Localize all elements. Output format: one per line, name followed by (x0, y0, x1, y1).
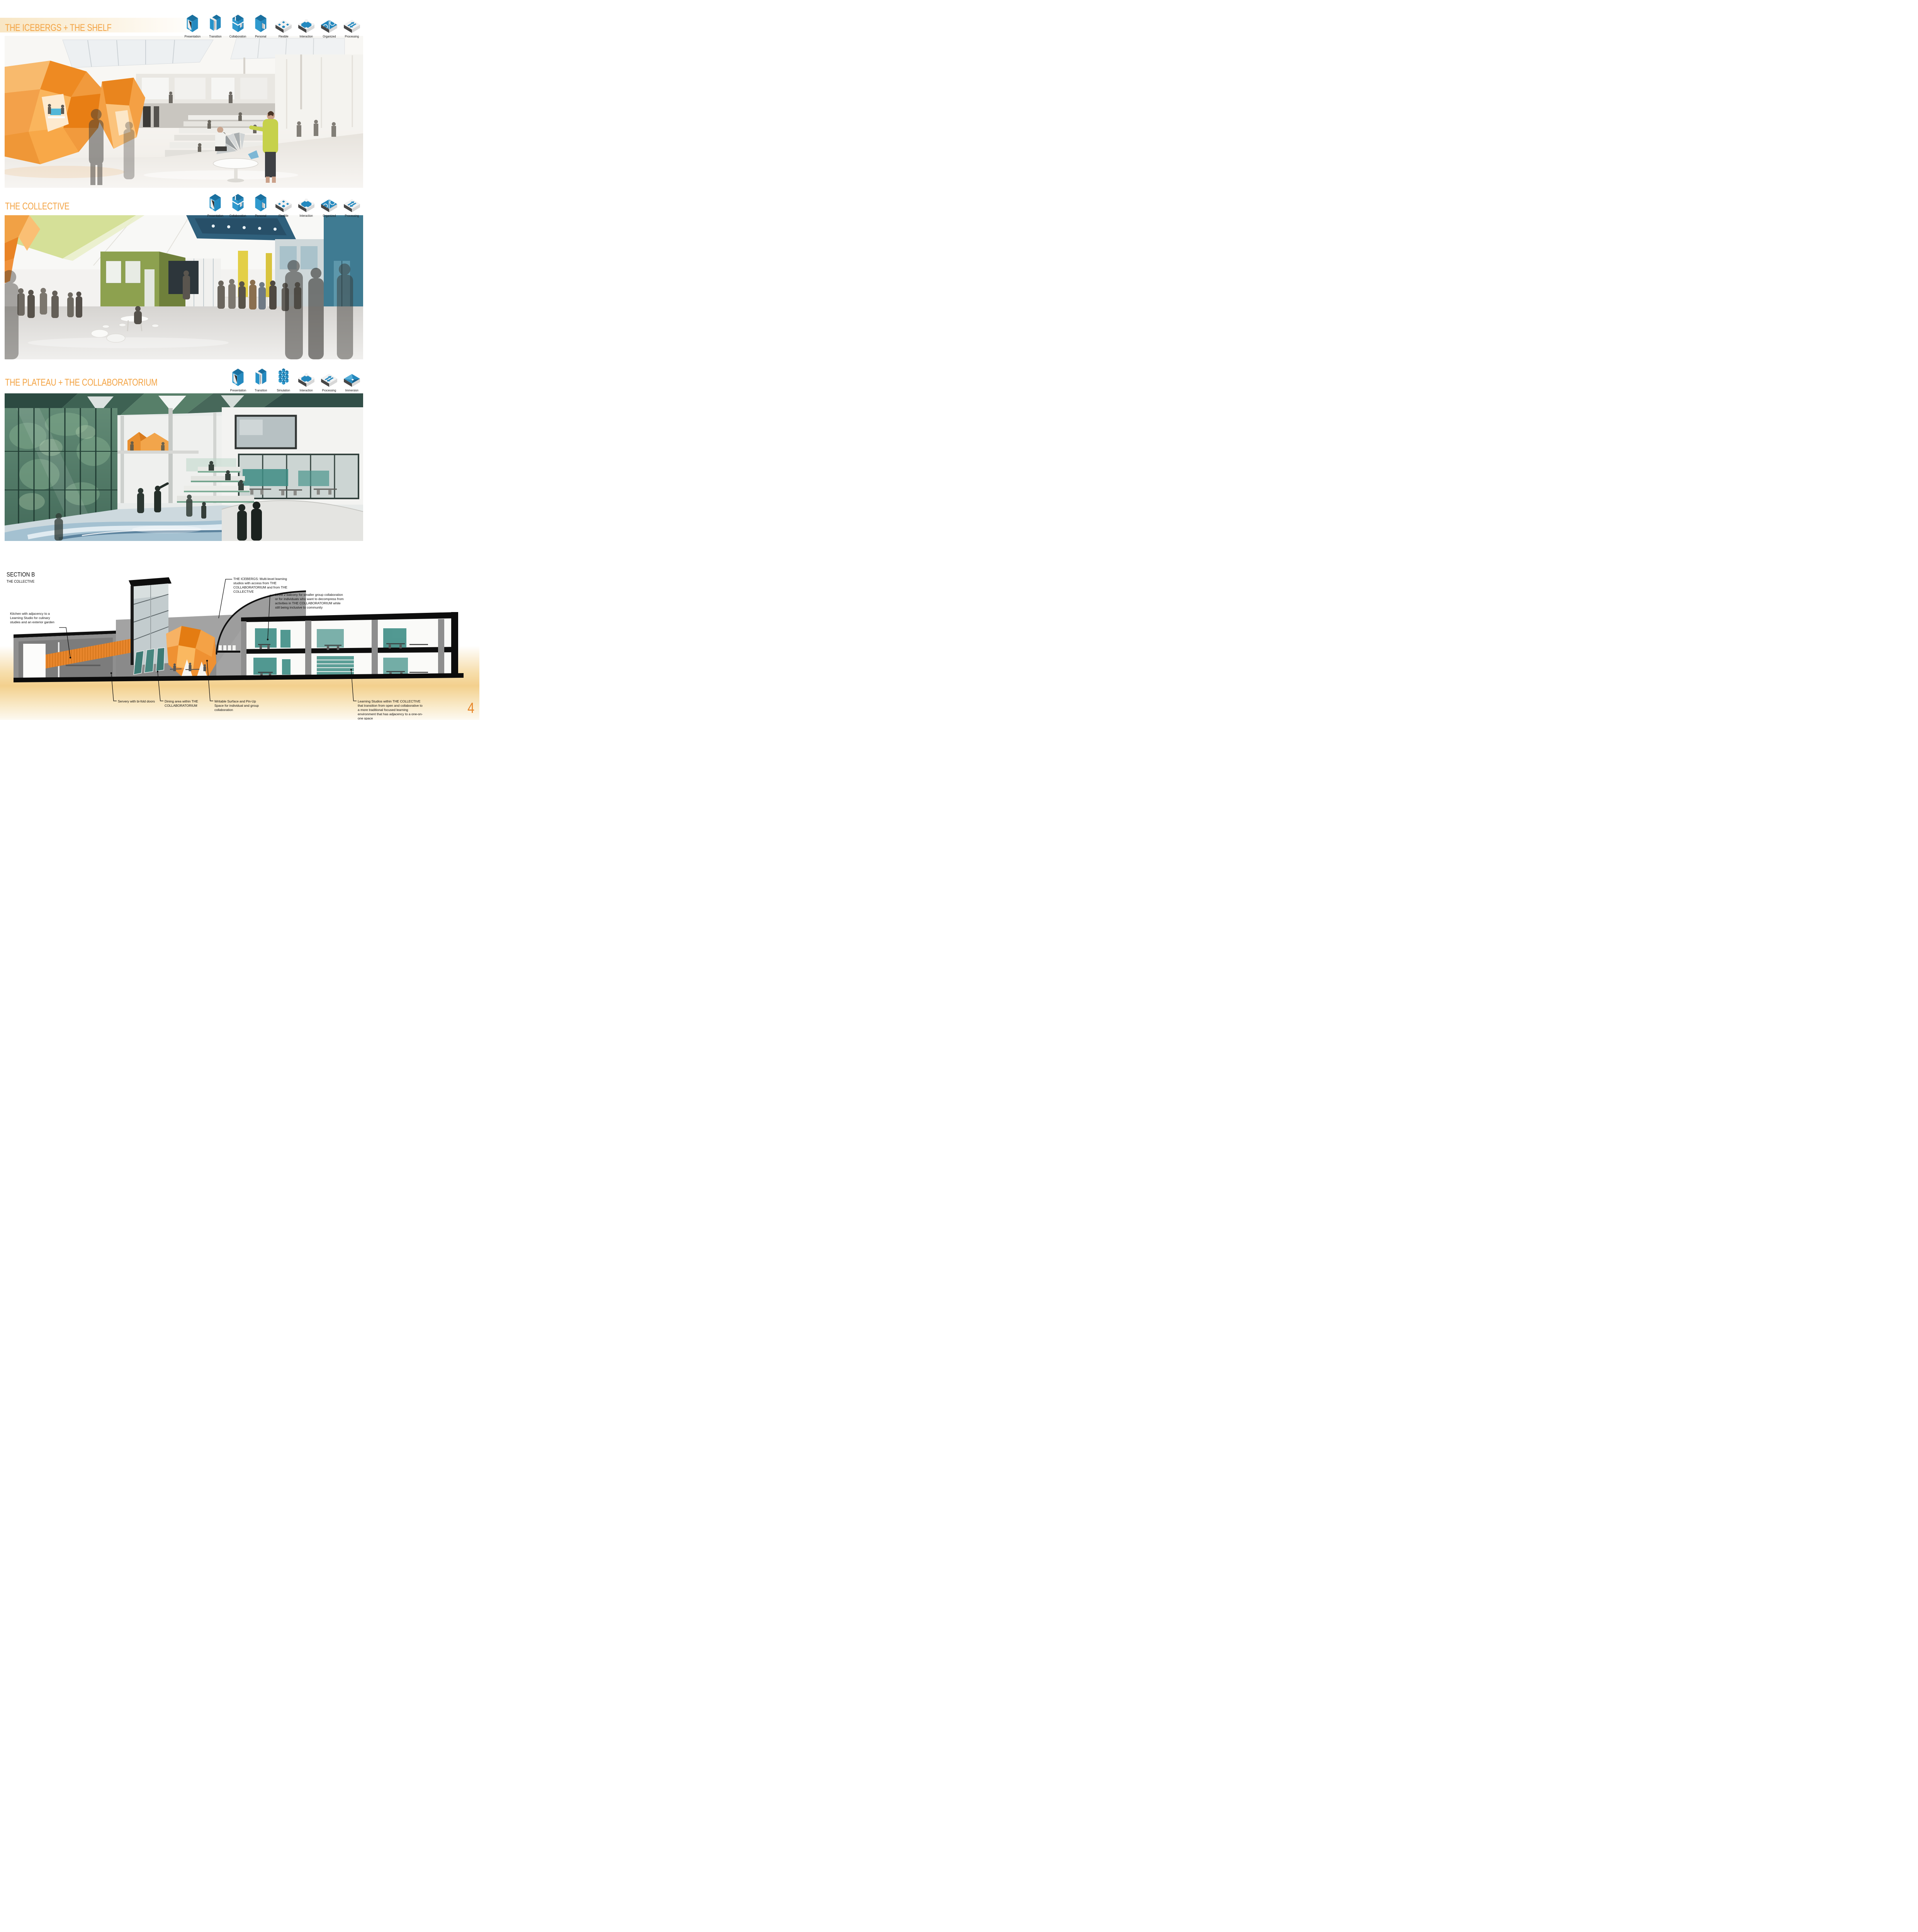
icon-label: Interaction (300, 214, 313, 218)
icon-label: Processing (322, 389, 336, 392)
icon-personal: Personal (251, 13, 271, 38)
icon-label: Presentation (230, 389, 246, 392)
icon-label: Presentation (184, 35, 200, 38)
icon-interaction: Interaction (296, 373, 316, 392)
icon-flexible: Flexible (274, 199, 294, 218)
flexible-tile-icon (275, 19, 292, 34)
presentation-cube-icon (231, 367, 245, 388)
panel1-icon-row: Presentation Transition Collaboration Pe… (182, 13, 362, 38)
icon-processing: Processing (342, 199, 362, 218)
icon-organized: Organized (319, 19, 339, 38)
interaction-tile-icon (297, 19, 315, 34)
icon-label: Transition (255, 389, 267, 392)
personal-cube-icon (254, 13, 267, 34)
rendering-collective (5, 215, 363, 359)
icon-label: Interaction (300, 35, 313, 38)
section-drawing (0, 572, 479, 720)
section-label-subtitle: THE COLLECTIVE (7, 580, 34, 584)
icon-processing: Processing (342, 19, 362, 38)
icon-transition: Transition (251, 367, 271, 392)
panel2-icon-row: Presentation Collaboration Personal Flex… (205, 192, 362, 218)
panel3-title: THE PLATEAU + THE COLLABORATORIUM (5, 378, 195, 388)
icon-label: Flexible (279, 35, 288, 38)
section-label-title: SECTION B (7, 572, 35, 578)
icon-label: Processing (345, 35, 359, 38)
icon-label: Personal (255, 214, 266, 218)
icon-simulation: Simulation (274, 367, 294, 392)
plateau-collaboratorium-perspective (5, 393, 363, 541)
interaction-tile-icon (297, 373, 315, 388)
panel3-icon-row: Presentation Transition Simulation Inter… (228, 367, 362, 392)
icon-organized: Organized (319, 199, 339, 218)
icon-label: Presentation (207, 214, 223, 218)
rendering-icebergs-shelf (5, 36, 363, 188)
icon-label: Personal (255, 35, 266, 38)
immersion-tile-icon (343, 373, 361, 388)
processing-tile-icon (343, 19, 361, 34)
icon-personal: Personal (251, 192, 271, 218)
rendering-plateau-collaboratorium (5, 393, 363, 541)
personal-cube-icon (254, 192, 267, 213)
icon-flexible: Flexible (274, 19, 294, 38)
icon-transition: Transition (205, 13, 225, 38)
annotation-writable-surface: Writable Surface and Pin-Up Space for in… (214, 699, 260, 712)
collective-perspective (5, 215, 363, 359)
icon-label: Transition (209, 35, 221, 38)
icebergs-shelf-perspective (5, 36, 363, 188)
icon-presentation: Presentation (205, 192, 225, 218)
icon-presentation: Presentation (228, 367, 248, 392)
interaction-tile-icon (297, 199, 315, 213)
icon-immersion: Immersion (342, 373, 362, 392)
presentation-board-page: THE ICEBERGS + THE SHELF Presentation Tr… (0, 0, 479, 720)
icon-label: Processing (345, 214, 359, 218)
processing-tile-icon (320, 373, 338, 388)
icon-collaboration: Collaboration (228, 192, 248, 218)
icon-label: Collaboration (229, 35, 246, 38)
icon-label: Organized (323, 214, 336, 218)
section-b-figure: SECTION B THE COLLECTIVE THE ICEBERGS: M… (0, 572, 479, 720)
transition-cube-icon (209, 13, 222, 34)
annotation-servery: Servery with bi-fold doors (118, 699, 169, 704)
annotation-level2-balcony: Level 2 balcony for smaller group collab… (275, 593, 345, 610)
icon-label: Flexible (279, 214, 288, 218)
icon-label: Organized (323, 35, 336, 38)
icon-presentation: Presentation (182, 13, 202, 38)
panel1-title: THE ICEBERGS + THE SHELF (5, 23, 138, 33)
annotation-learning-studios: Learning Studios within THE COLLECTIVE t… (358, 699, 424, 720)
annotation-kitchen: Kitchen with adjacency to a Learning Stu… (10, 612, 58, 624)
icon-interaction: Interaction (296, 199, 316, 218)
processing-tile-icon (343, 199, 361, 213)
transition-cube-icon (254, 367, 267, 388)
icon-label: Interaction (300, 389, 313, 392)
icon-label: Simulation (277, 389, 290, 392)
organized-tile-icon (320, 199, 338, 213)
icon-processing: Processing (319, 373, 339, 392)
simulation-cubes-icon (277, 367, 290, 388)
flexible-tile-icon (275, 199, 292, 213)
collaboration-cube-icon (231, 13, 245, 34)
section-label: SECTION B THE COLLECTIVE (7, 572, 40, 584)
organized-tile-icon (320, 19, 338, 34)
icon-interaction: Interaction (296, 19, 316, 38)
page-number: 4 (467, 701, 474, 716)
collaboration-cube-icon (231, 192, 245, 213)
presentation-cube-icon (186, 13, 199, 34)
presentation-cube-icon (209, 192, 222, 213)
annotation-dining-area: Dining area within THE COLLABORATORIUM (165, 699, 206, 708)
icon-collaboration: Collaboration (228, 13, 248, 38)
icon-label: Immersion (345, 389, 358, 392)
panel2-title: THE COLLECTIVE (5, 202, 85, 211)
icon-label: Collaboration (229, 214, 246, 218)
annotation-icebergs: THE ICEBERGS: Multi-level learning studi… (233, 577, 291, 594)
